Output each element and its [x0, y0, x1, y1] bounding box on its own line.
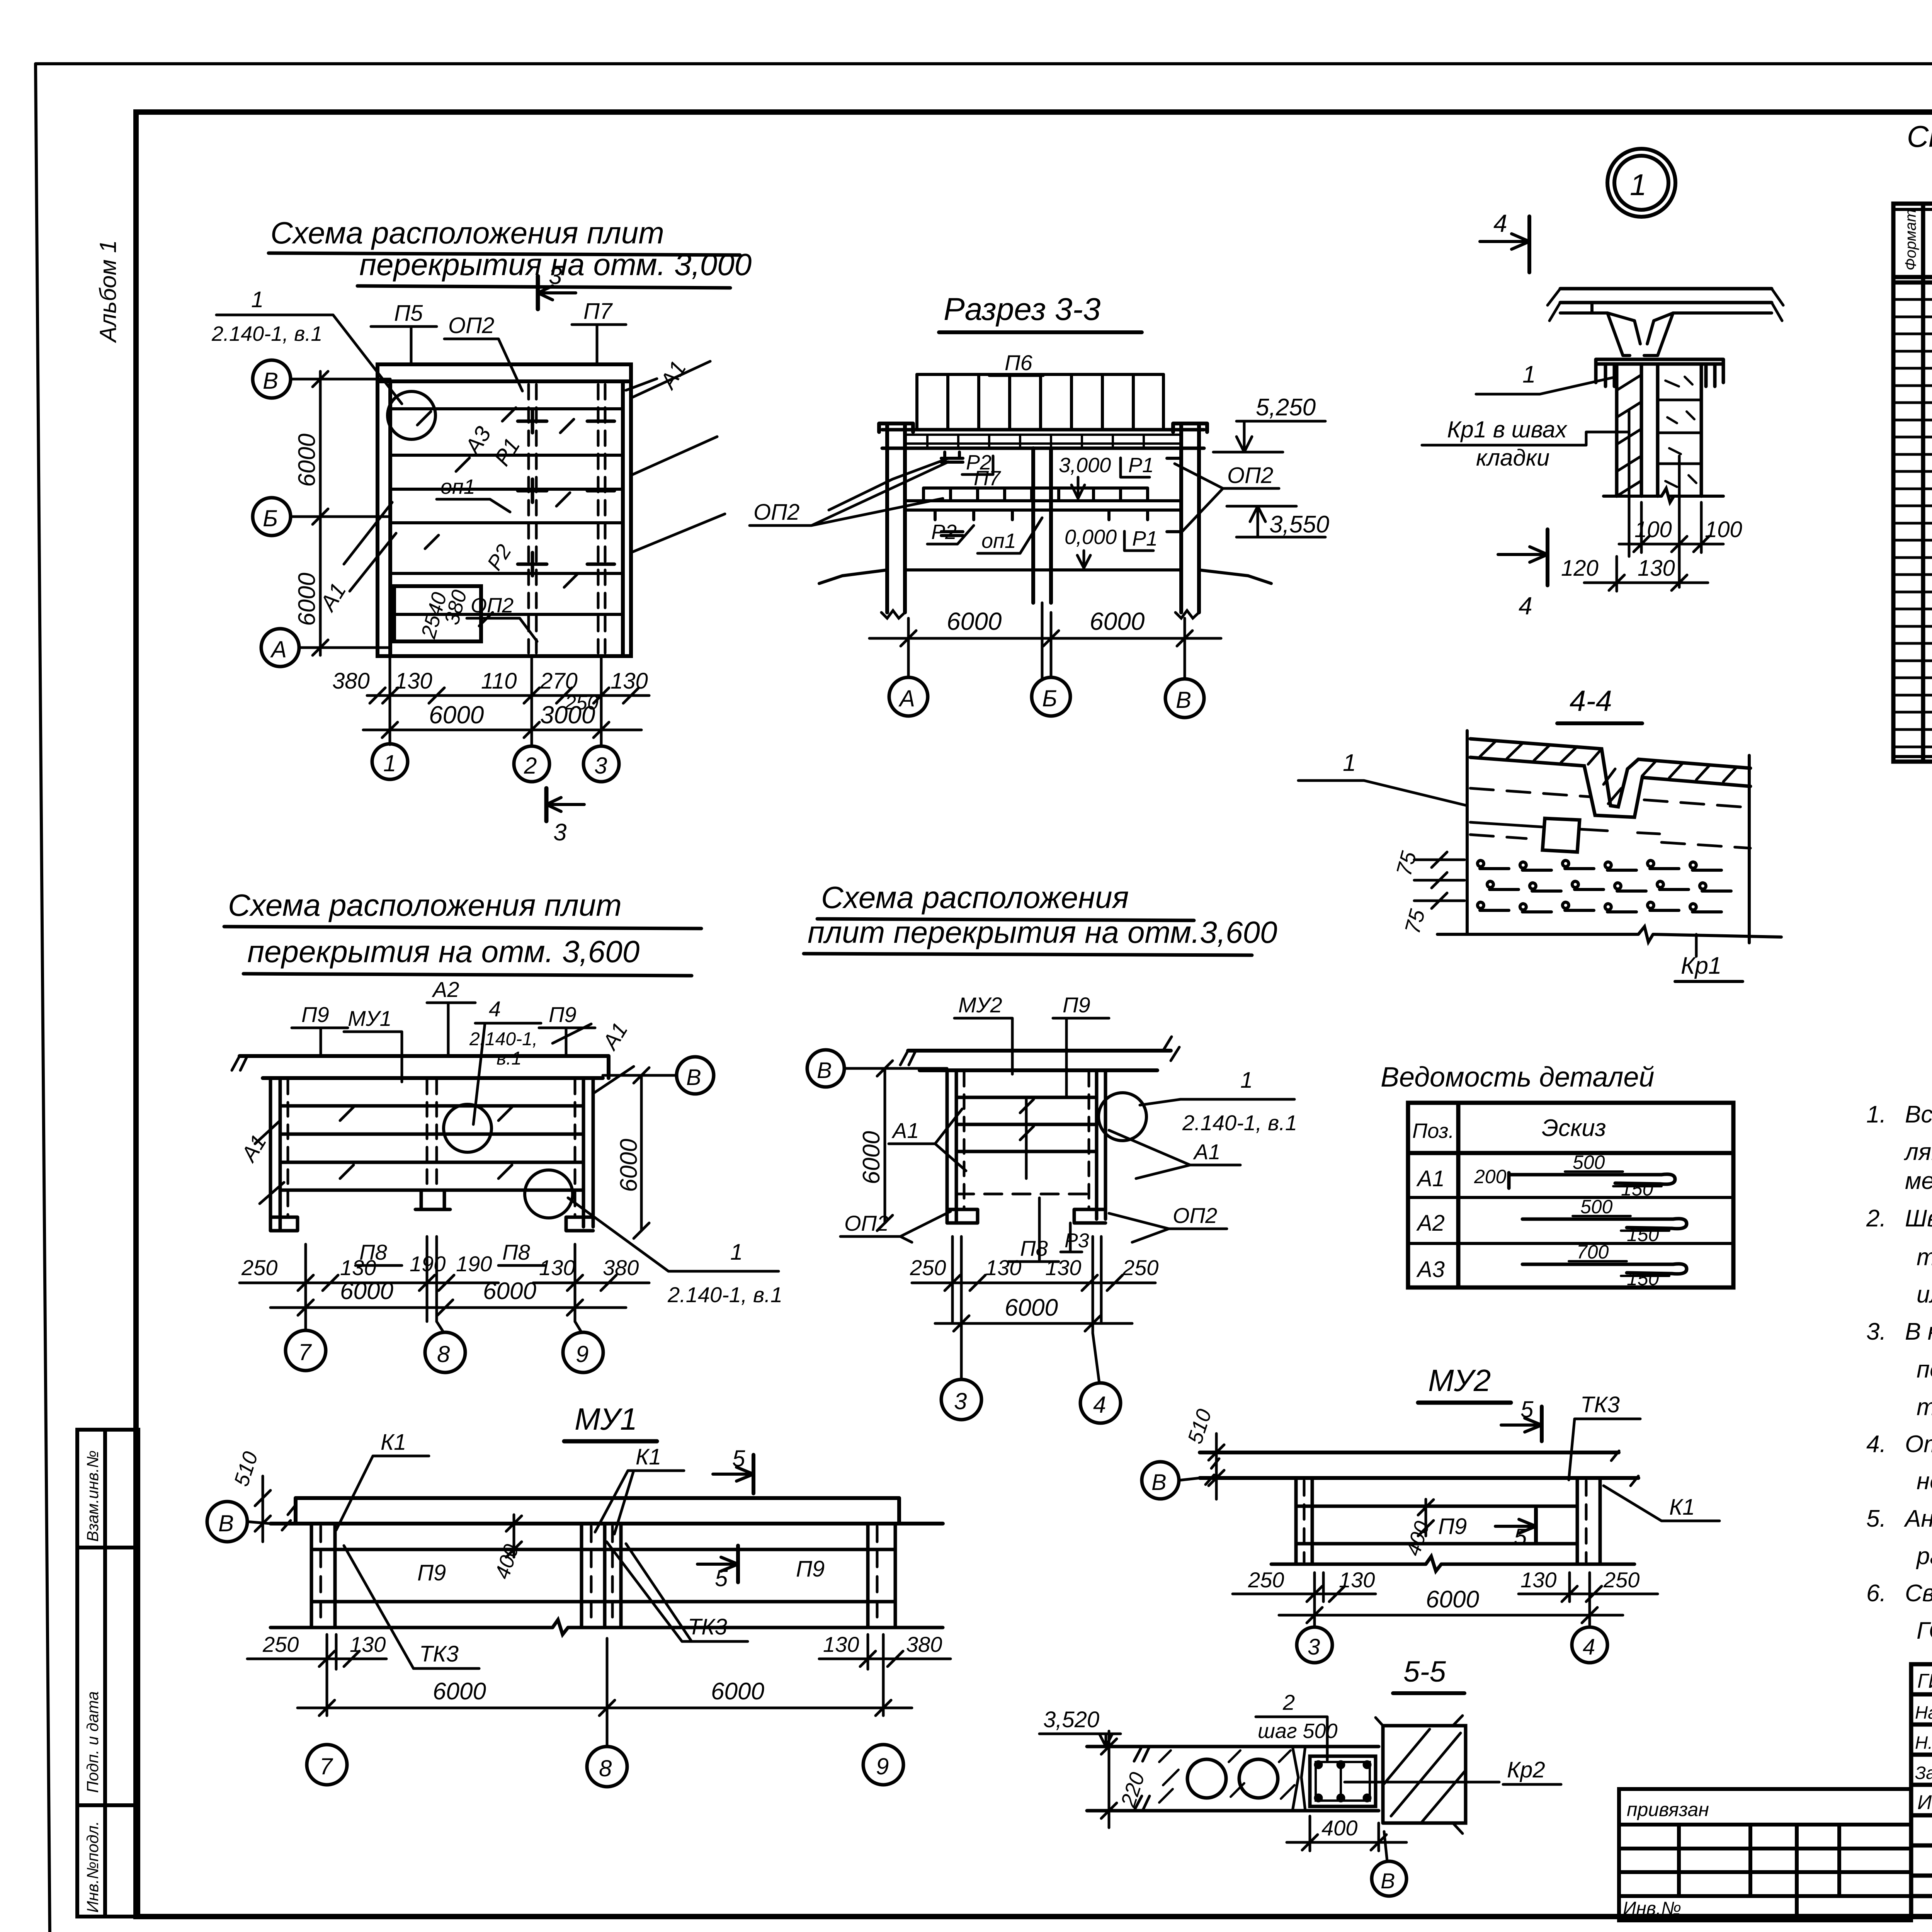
svg-text:8: 8: [599, 1755, 612, 1781]
svg-text:100: 100: [1705, 517, 1742, 542]
svg-text:перекрытия на отм. 3,600: перекрытия на отм. 3,600: [247, 934, 639, 969]
svg-text:ОП2: ОП2: [844, 1211, 889, 1235]
svg-text:Кр1 в швах: Кр1 в швах: [1447, 417, 1568, 442]
svg-text:А1: А1: [891, 1118, 919, 1143]
svg-text:6000: 6000: [711, 1678, 764, 1705]
svg-text:2.140-1, в.1: 2.140-1, в.1: [1182, 1111, 1297, 1135]
svg-text:100: 100: [1634, 517, 1672, 542]
svg-text:Ведомость деталей: Ведомость деталей: [1381, 1062, 1654, 1093]
svg-text:190: 190: [410, 1252, 446, 1276]
svg-text:2: 2: [524, 753, 537, 779]
svg-text:5: 5: [1514, 1524, 1527, 1550]
svg-text:130: 130: [539, 1255, 575, 1280]
svg-text:Спецификация элементов монол: Спецификация элементов монолитной: [1907, 119, 1932, 153]
svg-text:1: 1: [730, 1240, 743, 1265]
svg-text:270: 270: [540, 668, 578, 694]
svg-text:3,550: 3,550: [1269, 511, 1329, 538]
svg-text:3,520: 3,520: [1043, 1707, 1099, 1732]
svg-text:П8: П8: [1020, 1236, 1048, 1260]
svg-text:П9: П9: [301, 1002, 329, 1027]
svg-text:5: 5: [715, 1565, 728, 1591]
svg-text:1: 1: [251, 287, 264, 312]
svg-text:А: А: [270, 636, 287, 662]
svg-text:В: В: [263, 368, 278, 394]
svg-text:5: 5: [732, 1446, 745, 1471]
svg-text:тельных закладных деталей М3 д: тельных закладных деталей М3 для креплен…: [1917, 1394, 1932, 1420]
svg-text:3: 3: [553, 819, 566, 846]
svg-text:6000: 6000: [483, 1278, 536, 1304]
svg-text:2: 2: [1282, 1690, 1295, 1714]
svg-text:П9: П9: [1063, 993, 1090, 1017]
svg-text:МУ1: МУ1: [575, 1402, 637, 1436]
svg-text:1: 1: [383, 750, 396, 776]
svg-text:П7: П7: [583, 299, 613, 324]
svg-text:В наименовании плит по ГОСТ 22: В наименовании плит по ГОСТ 22701.0-77,*…: [1905, 1318, 1932, 1345]
svg-text:Инв.№: Инв.№: [1623, 1898, 1681, 1919]
svg-text:ОП2: ОП2: [1227, 463, 1273, 488]
svg-text:ОП2: ОП2: [448, 313, 494, 338]
svg-text:Б: Б: [1042, 685, 1057, 711]
svg-text:4: 4: [1093, 1392, 1106, 1418]
svg-text:250: 250: [1248, 1568, 1284, 1592]
svg-text:шаг 500: шаг 500: [1258, 1719, 1338, 1743]
svg-text:К1: К1: [1669, 1495, 1695, 1520]
svg-text:П9: П9: [417, 1560, 446, 1585]
svg-text:0,000: 0,000: [1065, 526, 1117, 549]
svg-text:3: 3: [954, 1388, 967, 1414]
svg-text:оп1: оп1: [981, 529, 1016, 553]
svg-text:250: 250: [910, 1255, 946, 1280]
svg-text:130: 130: [1045, 1255, 1081, 1280]
svg-text:или бетоном класса В15 на мелк: или бетоном класса В15 на мелком заполни…: [1917, 1281, 1932, 1308]
svg-text:Кр1: Кр1: [1681, 952, 1722, 979]
svg-text:МУ1: МУ1: [348, 1006, 392, 1031]
svg-text:А1: А1: [1193, 1139, 1221, 1164]
svg-text:Р3: Р3: [1065, 1230, 1089, 1252]
svg-text:Зав.гр.: Зав.гр.: [1915, 1763, 1932, 1783]
svg-text:130: 130: [985, 1255, 1021, 1280]
svg-text:130: 130: [1339, 1568, 1375, 1592]
svg-text:П8: П8: [502, 1240, 530, 1264]
svg-text:150: 150: [1627, 1268, 1659, 1289]
svg-text:Кр2: Кр2: [1507, 1757, 1545, 1782]
svg-text:В: В: [686, 1065, 701, 1090]
svg-text:последующие цифры обозначают:„: последующие цифры обозначают:„1"-наличие…: [1917, 1356, 1932, 1383]
svg-text:МУ2: МУ2: [958, 993, 1002, 1017]
svg-text:кладки: кладки: [1476, 445, 1549, 471]
svg-text:120: 120: [1561, 556, 1599, 581]
svg-text:ОП2: ОП2: [471, 594, 514, 617]
svg-text:1: 1: [1630, 168, 1646, 202]
svg-text:4: 4: [1493, 209, 1507, 237]
svg-text:привязан: привязан: [1627, 1799, 1709, 1820]
svg-text:3: 3: [1308, 1634, 1320, 1660]
svg-text:тщательно заполнить цементным: тщательно заполнить цементным раствором …: [1917, 1244, 1932, 1270]
svg-text:А2: А2: [432, 977, 459, 1002]
svg-text:П9: П9: [1438, 1514, 1467, 1539]
svg-text:150: 150: [1621, 1178, 1653, 1200]
svg-text:В: В: [218, 1510, 234, 1536]
svg-text:Зона: Зона: [1929, 231, 1932, 267]
svg-text:380: 380: [603, 1255, 639, 1280]
svg-text:В: В: [1176, 687, 1191, 713]
svg-text:6000: 6000: [1005, 1294, 1058, 1321]
svg-text:6.: 6.: [1866, 1580, 1886, 1607]
svg-text:1.: 1.: [1866, 1101, 1886, 1128]
svg-text:В: В: [1151, 1470, 1167, 1495]
svg-text:П5: П5: [394, 301, 423, 326]
svg-text:Альбом 1: Альбом 1: [95, 240, 121, 343]
svg-text:150: 150: [1627, 1224, 1659, 1245]
svg-text:3: 3: [594, 753, 607, 779]
svg-text:Эскиз: Эскиз: [1542, 1115, 1606, 1141]
svg-text:4: 4: [1519, 592, 1532, 620]
svg-text:110: 110: [481, 668, 517, 694]
svg-text:6000: 6000: [294, 573, 320, 626]
svg-text:6000: 6000: [294, 434, 320, 487]
svg-text:П9: П9: [549, 1002, 577, 1027]
svg-text:Нач.отд.: Нач.отд.: [1915, 1702, 1932, 1723]
svg-text:250: 250: [1122, 1255, 1158, 1280]
svg-text:130: 130: [350, 1632, 386, 1656]
svg-text:В: В: [1381, 1869, 1395, 1893]
svg-text:Схема расположения плит: Схема расположения плит: [228, 888, 622, 922]
svg-text:5.: 5.: [1866, 1505, 1886, 1532]
svg-text:6000: 6000: [1426, 1586, 1479, 1613]
svg-text:Р1: Р1: [1132, 527, 1158, 550]
svg-text:К1: К1: [381, 1430, 406, 1455]
svg-text:6000: 6000: [340, 1278, 393, 1304]
svg-text:130: 130: [395, 668, 432, 694]
svg-text:130: 130: [1638, 556, 1675, 581]
svg-text:оп1: оп1: [440, 475, 475, 498]
svg-text:200: 200: [1474, 1166, 1507, 1187]
svg-text:А3: А3: [1416, 1257, 1445, 1282]
svg-text:Разрез 3-3: Разрез 3-3: [944, 292, 1100, 327]
svg-text:190: 190: [456, 1252, 492, 1276]
svg-text:130: 130: [611, 668, 648, 694]
svg-text:5: 5: [1520, 1396, 1534, 1422]
svg-text:ОП2: ОП2: [753, 500, 799, 525]
svg-text:Поз.: Поз.: [1412, 1119, 1454, 1143]
svg-text:6000: 6000: [858, 1131, 885, 1184]
svg-text:5,250: 5,250: [1256, 394, 1316, 421]
svg-text:Швы между плитами, а также меж: Швы между плитами, а также между плитами…: [1905, 1205, 1932, 1232]
svg-text:3.: 3.: [1866, 1318, 1886, 1345]
svg-text:Все плиты покрытия приваривают: Все плиты покрытия привариваются к закла…: [1905, 1101, 1932, 1128]
svg-text:Формат: Формат: [1902, 209, 1919, 270]
svg-text:6000: 6000: [616, 1139, 642, 1192]
svg-text:7: 7: [320, 1753, 333, 1779]
svg-text:П7: П7: [974, 467, 1001, 490]
svg-text:1: 1: [1343, 750, 1356, 776]
svg-text:4: 4: [489, 997, 501, 1021]
svg-text:Взам.инв.№: Взам.инв.№: [83, 1451, 102, 1542]
svg-text:500: 500: [1573, 1151, 1605, 1173]
svg-text:130: 130: [1520, 1568, 1556, 1592]
svg-text:Схема расположения: Схема расположения: [821, 880, 1129, 915]
svg-text:в.1: в.1: [497, 1048, 522, 1069]
svg-text:Подп. и дата: Подп. и дата: [83, 1691, 102, 1793]
svg-text:Схема расположения плит: Схема расположения плит: [270, 216, 664, 250]
svg-text:ментов.: ментов.: [1905, 1168, 1932, 1194]
svg-text:6000: 6000: [1090, 607, 1145, 635]
svg-text:6000: 6000: [429, 701, 484, 729]
svg-text:раствора.: раствора.: [1916, 1543, 1932, 1570]
svg-text:П6: П6: [1005, 350, 1033, 375]
svg-text:6000: 6000: [947, 607, 1002, 635]
svg-text:400: 400: [1321, 1816, 1357, 1840]
svg-text:4-4: 4-4: [1570, 685, 1612, 718]
svg-text:250: 250: [241, 1255, 277, 1280]
svg-text:ОП2: ОП2: [1173, 1203, 1217, 1228]
svg-text:А2: А2: [1416, 1211, 1445, 1236]
svg-text:Анкера защищаются от коррозии: Анкера защищаются от коррозии слоем цеме…: [1903, 1505, 1932, 1532]
svg-text:3: 3: [549, 263, 562, 289]
svg-text:Н.контр.: Н.контр.: [1915, 1733, 1932, 1753]
svg-text:ГОСТ 9467-75,* сварные швы hш: ГОСТ 9467-75,* сварные швы hш = 6мм.: [1917, 1617, 1932, 1644]
svg-text:не нарушая ребер плит.: не нарушая ребер плит.: [1917, 1468, 1932, 1495]
svg-text:П8: П8: [359, 1240, 387, 1264]
svg-text:700: 700: [1577, 1241, 1609, 1263]
svg-text:2.140-1, в.1: 2.140-1, в.1: [211, 322, 322, 345]
svg-text:7: 7: [298, 1339, 312, 1365]
svg-text:8: 8: [437, 1341, 450, 1367]
svg-text:лям не менее чем в 3ˣ точках п: лям не менее чем в 3ˣ точках по всей дли…: [1904, 1139, 1932, 1165]
svg-text:Р2: Р2: [931, 520, 957, 544]
svg-text:А1: А1: [1416, 1166, 1445, 1191]
svg-text:Р1: Р1: [1128, 454, 1154, 477]
svg-text:ТК3: ТК3: [419, 1641, 459, 1667]
svg-text:380: 380: [332, 668, 370, 694]
svg-text:1: 1: [1240, 1068, 1253, 1093]
svg-text:2.140-1,: 2.140-1,: [469, 1029, 537, 1049]
svg-text:6000: 6000: [433, 1678, 486, 1705]
svg-text:500: 500: [1580, 1196, 1613, 1218]
svg-text:9: 9: [876, 1753, 889, 1779]
svg-text:4: 4: [1583, 1634, 1595, 1660]
svg-text:5-5: 5-5: [1403, 1655, 1446, 1688]
svg-text:9: 9: [576, 1341, 588, 1367]
svg-text:ТК3: ТК3: [1580, 1392, 1620, 1417]
svg-text:4.: 4.: [1866, 1431, 1886, 1458]
svg-text:Инж.: Инж.: [1917, 1791, 1932, 1814]
svg-text:ГИП: ГИП: [1917, 1670, 1932, 1692]
svg-text:380: 380: [906, 1632, 942, 1656]
svg-text:Сварку производить электродом: Сварку производить электродом типа Э42 п…: [1905, 1580, 1932, 1607]
svg-text:ТК3: ТК3: [688, 1614, 727, 1639]
svg-text:2.140-1, в.1: 2.140-1, в.1: [667, 1282, 782, 1307]
svg-text:2.: 2.: [1866, 1205, 1886, 1232]
svg-text:А: А: [898, 685, 915, 711]
svg-text:Инв.№подл.: Инв.№подл.: [83, 1821, 102, 1913]
svg-text:В: В: [817, 1058, 832, 1083]
svg-text:250: 250: [262, 1632, 299, 1656]
svg-text:1: 1: [1522, 361, 1536, 388]
svg-text:3000: 3000: [540, 701, 595, 729]
svg-text:МУ2: МУ2: [1428, 1363, 1491, 1398]
svg-text:3,000: 3,000: [1059, 454, 1111, 477]
svg-text:К1: К1: [636, 1444, 661, 1469]
svg-text:130: 130: [823, 1632, 859, 1656]
svg-text:250: 250: [1603, 1568, 1639, 1592]
svg-text:Отверстия до ф200 пробиваются: Отверстия до ф200 пробиваются в плитах п…: [1905, 1431, 1932, 1458]
svg-text:Б: Б: [263, 505, 278, 531]
svg-text:П9: П9: [796, 1556, 825, 1582]
